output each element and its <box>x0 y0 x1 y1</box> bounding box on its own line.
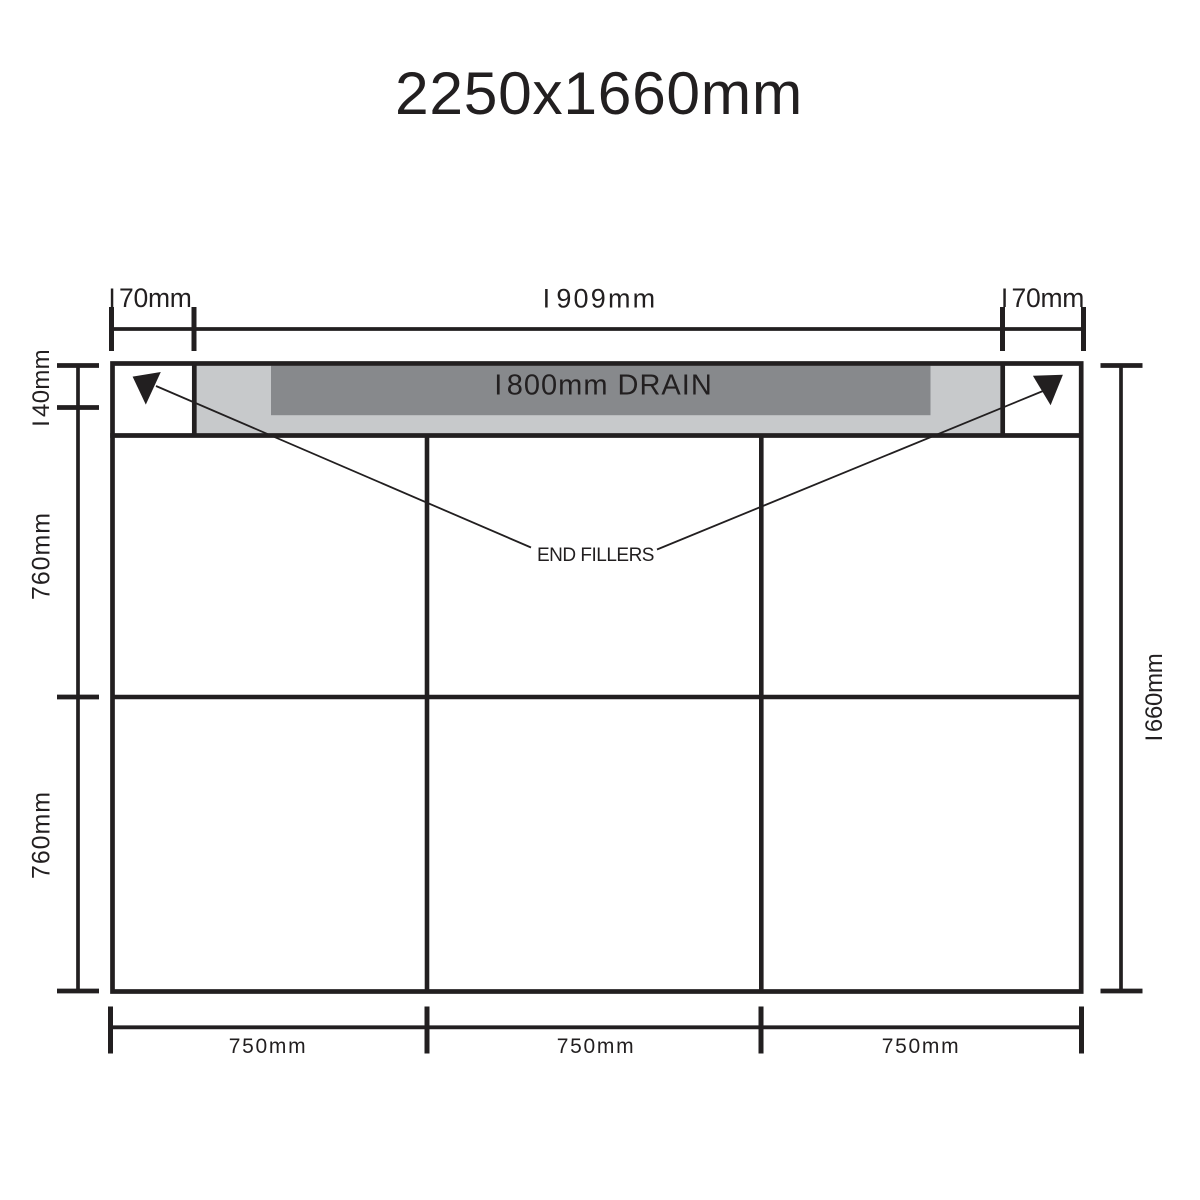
svg-text:750mm: 750mm <box>229 1035 308 1058</box>
svg-text:END FILLERS: END FILLERS <box>537 545 654 566</box>
svg-text:2250x1660mm: 2250x1660mm <box>395 59 803 127</box>
svg-text:I40mm: I40mm <box>28 349 55 427</box>
svg-text:I660mm: I660mm <box>1141 654 1168 742</box>
svg-text:I70mm: I70mm <box>1001 283 1084 313</box>
svg-text:760mm: 760mm <box>28 512 56 600</box>
svg-text:750mm: 750mm <box>882 1035 961 1058</box>
svg-text:I909mm: I909mm <box>543 284 658 314</box>
svg-text:760mm: 760mm <box>28 791 56 879</box>
svg-text:I70mm: I70mm <box>108 283 191 313</box>
svg-text:I800mm DRAIN: I800mm DRAIN <box>494 370 713 402</box>
svg-text:750mm: 750mm <box>557 1035 636 1058</box>
